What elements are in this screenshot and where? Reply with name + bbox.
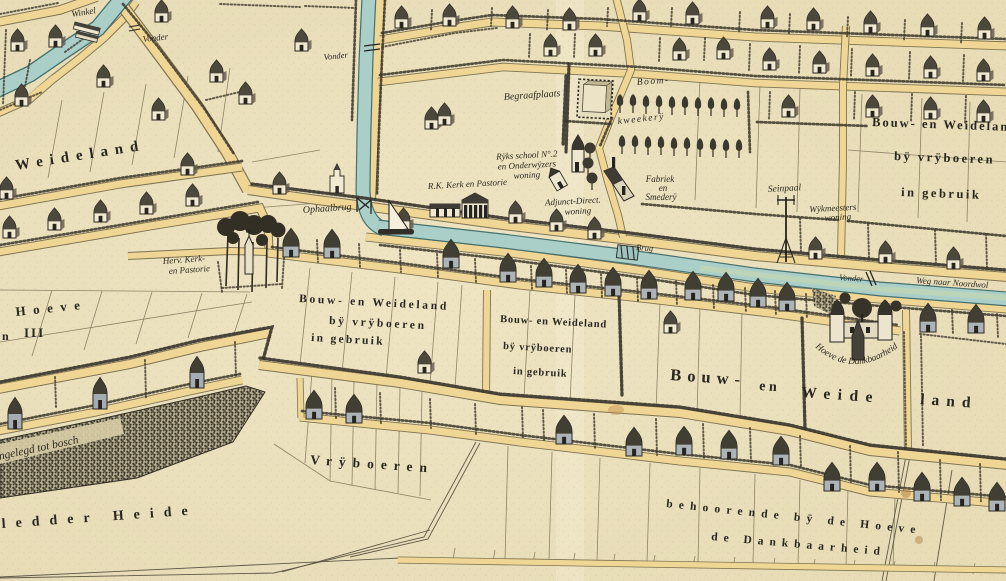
svg-text:in gebruik: in gebruik [901, 185, 982, 202]
svg-text:Vonder: Vonder [839, 272, 864, 284]
svg-text:Brug: Brug [636, 242, 654, 253]
svg-text:woning: woning [564, 205, 591, 216]
svg-text:woning: woning [513, 169, 540, 180]
svg-text:III: III [24, 325, 45, 340]
svg-text:woning: woning [824, 211, 851, 222]
svg-text:en: en [759, 379, 781, 395]
svg-text:n: n [2, 329, 9, 343]
svg-text:Smederÿ: Smederÿ [646, 192, 677, 202]
svg-text:Seinpaal: Seinpaal [768, 183, 802, 195]
